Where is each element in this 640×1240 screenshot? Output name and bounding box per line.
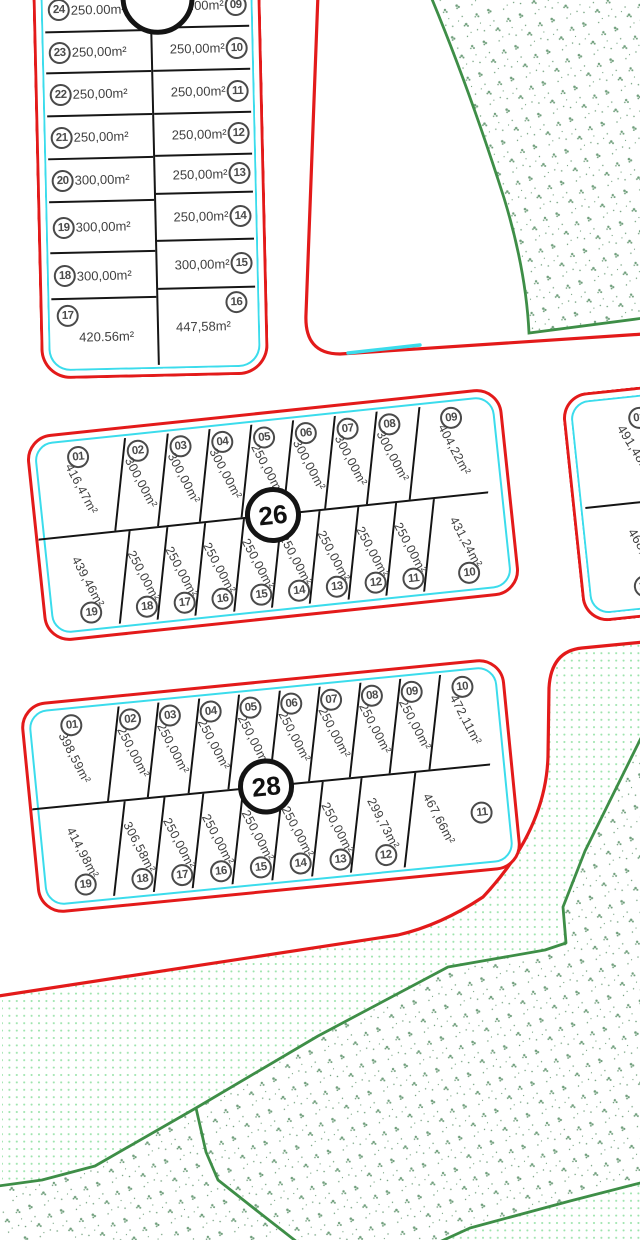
parcel-cell: 491,48m²01	[575, 390, 640, 509]
plot-area-label: 250,00m²	[353, 524, 391, 579]
plot-area-label: 300,00m²	[173, 256, 230, 272]
parcel-grid-right: 491,48m²01468,58m²12	[575, 390, 640, 610]
plot-area-label: 250,00m²	[239, 807, 277, 862]
plot-area-label: 250,00m²	[163, 544, 201, 599]
plot-area-label: 491,48m²	[614, 422, 640, 479]
plot-area-label: 250,00m²	[160, 815, 198, 870]
plot-area-label: 300,00m²	[206, 446, 244, 501]
parcel-cell-content: 10431,24m²	[426, 492, 508, 590]
plot-area-label: 472,11m²	[447, 692, 485, 747]
plot-number-circle: 15	[230, 252, 252, 274]
plot-area-label: 250,00m²	[275, 708, 313, 763]
plot-area-label: 250,00m²	[72, 128, 129, 144]
parcel-cell: 19414,98m²	[41, 801, 125, 903]
plot-area-label: 250,00m²	[315, 528, 353, 583]
parcel-row: 20300,00m²	[48, 158, 154, 203]
parcel-cell: 09404,22m²	[410, 399, 498, 500]
parcel-cell: 10472,11m²	[431, 669, 501, 769]
parcel-cell: 468,58m²12	[585, 494, 640, 611]
plot-area-label: 300,00m²	[332, 432, 370, 487]
plot-number-circle: 18	[54, 265, 76, 287]
plot-number-circle: 09	[224, 0, 246, 16]
plot-area-label: 250,00m²	[71, 43, 128, 59]
plot-area-label: 250,00m²	[124, 548, 162, 603]
plot-area-label: 300,00m²	[164, 450, 202, 505]
parcel-cell-content: 11467,66m²	[406, 765, 509, 867]
plot-number-circle: 14	[229, 204, 251, 226]
parcel-cell-content: 01398,59m²	[33, 708, 117, 808]
parcel-cell: 19439,46m²	[48, 531, 130, 631]
plot-number-circle: 21	[50, 126, 72, 148]
plot-area-label: 300,00m²	[374, 428, 412, 483]
plot-area-label: 431,24m²	[447, 514, 485, 569]
plot-number-circle: 12	[227, 122, 249, 144]
cadastral-map: 24250.00m²23250,00m²22250,00m²21250,00m²…	[0, 0, 640, 1240]
plot-area-label: 250,00m²	[396, 696, 434, 751]
parcel-row: 250,00m²13	[155, 155, 253, 195]
plot-area-label: 468,58m²	[625, 526, 640, 583]
plot-number-circle: 20	[51, 169, 73, 191]
parcel-row: 17420.56m²	[51, 298, 157, 359]
vegetation-area-topright	[429, 0, 640, 333]
plot-area-label: 439,46m²	[69, 554, 107, 609]
plot-area-label: 250,00m²	[170, 83, 227, 99]
plot-number-circle: 12	[633, 574, 640, 598]
plot-area-label: 250,00m²	[201, 540, 239, 595]
parcel-row: 300,00m²15	[157, 240, 255, 290]
plot-area-label: 250,00m²	[195, 716, 233, 771]
plot-area-label: 250,00m²	[391, 520, 429, 575]
plot-area-label: 398,59m²	[56, 730, 94, 785]
plot-area-label: 250.00m²	[70, 1, 127, 17]
plot-area-label: 300,00m²	[73, 171, 130, 187]
parcel-column: 24250.00m²23250,00m²22250,00m²21250,00m²…	[43, 0, 160, 367]
block-number-26: 26	[257, 498, 289, 532]
parcel-cell-content: 19439,46m²	[48, 532, 128, 630]
plot-area-label: 250,00m²	[318, 800, 356, 855]
parcel-cell-content: 09404,22m²	[410, 400, 497, 499]
plot-area-label: 250,00m²	[171, 126, 228, 142]
plot-area-label: 300,00m²	[122, 454, 160, 509]
plot-number-circle: 22	[49, 83, 71, 105]
plot-number-circle: 17	[56, 305, 78, 327]
plot-area-label: 250,00m²	[114, 724, 152, 779]
plot-number-circle: 24	[48, 0, 70, 21]
parcel-cell: 10431,24m²	[425, 491, 507, 591]
parcel-row: 21250,00m²	[47, 115, 153, 160]
plot-area-label: 404,22m²	[435, 422, 473, 477]
plot-area-label: 250,00m²	[171, 166, 228, 182]
plot-area-label: 420.56m²	[78, 328, 135, 344]
plot-area-label: 416,47m²	[62, 461, 100, 516]
plot-number-circle: 10	[225, 36, 247, 58]
plot-number-circle: 23	[48, 41, 70, 63]
plot-area-label: 299,73m²	[364, 795, 402, 850]
plot-area-label: 250,00m²	[316, 704, 354, 759]
plot-area-label: 250,00m²	[72, 85, 129, 101]
parcel-row: 250,00m²14	[156, 193, 254, 242]
plot-area-label: 414,98m²	[63, 825, 101, 880]
plot-number-circle: 16	[225, 291, 247, 313]
parcel-cell: 01416,47m²	[39, 438, 127, 539]
plot-number-circle: 13	[228, 162, 250, 184]
plot-number-circle: 19	[52, 216, 74, 238]
parcel-row: 22250,00m²	[46, 72, 152, 117]
plot-area-label: 300,00m²	[76, 267, 133, 283]
parcel-block-top: 24250.00m²23250,00m²22250,00m²21250,00m²…	[31, 0, 269, 380]
plot-area-label: 250,00m²	[356, 700, 394, 755]
parcel-cell-content: 19414,98m²	[42, 802, 123, 902]
plot-area-label: 300,00m²	[75, 218, 132, 234]
plot-area-label: 250,00m²	[278, 803, 316, 858]
plot-number-circle: 11	[470, 801, 494, 825]
parcel-cell-content: 01416,47m²	[39, 439, 124, 537]
plot-area-label: 250,00m²	[239, 536, 277, 591]
plot-area-label: 447,58m²	[175, 318, 232, 334]
parcel-grid-top: 24250.00m²23250,00m²22250,00m²21250,00m²…	[43, 0, 257, 367]
parcel-column: 250.00m²09250,00m²10250,00m²11250,00m²12…	[150, 0, 257, 365]
plot-number-circle: 11	[226, 79, 248, 101]
parcel-row: 250,00m²12	[154, 113, 252, 157]
parcel-row: 250,00m²11	[153, 70, 251, 115]
plot-area-label: 467,66m²	[420, 791, 458, 846]
parcel-cell-content: 10472,11m²	[432, 670, 500, 768]
plot-area-label: 250,00m²	[199, 811, 237, 866]
parcel-cell-content: 12299,73m²	[353, 774, 413, 872]
plot-area-label: 250,00m²	[169, 40, 226, 56]
parcel-row: 19300,00m²	[49, 201, 155, 254]
parcel-row: 23250,00m²	[45, 31, 151, 74]
parcel-row: 16447,58m²	[158, 288, 256, 357]
parcel-cell: 11467,66m²	[405, 764, 510, 868]
block-number-28: 28	[250, 770, 282, 804]
parcel-row: 18300,00m²	[50, 252, 156, 300]
plot-area-label: 250,00m²	[155, 720, 193, 775]
plot-area-label: 306,58m²	[120, 819, 158, 874]
plot-area-label: 250,00m²	[172, 208, 229, 224]
plot-area-label: 300,00m²	[290, 437, 328, 492]
parcel-cell: 01398,59m²	[32, 706, 119, 808]
